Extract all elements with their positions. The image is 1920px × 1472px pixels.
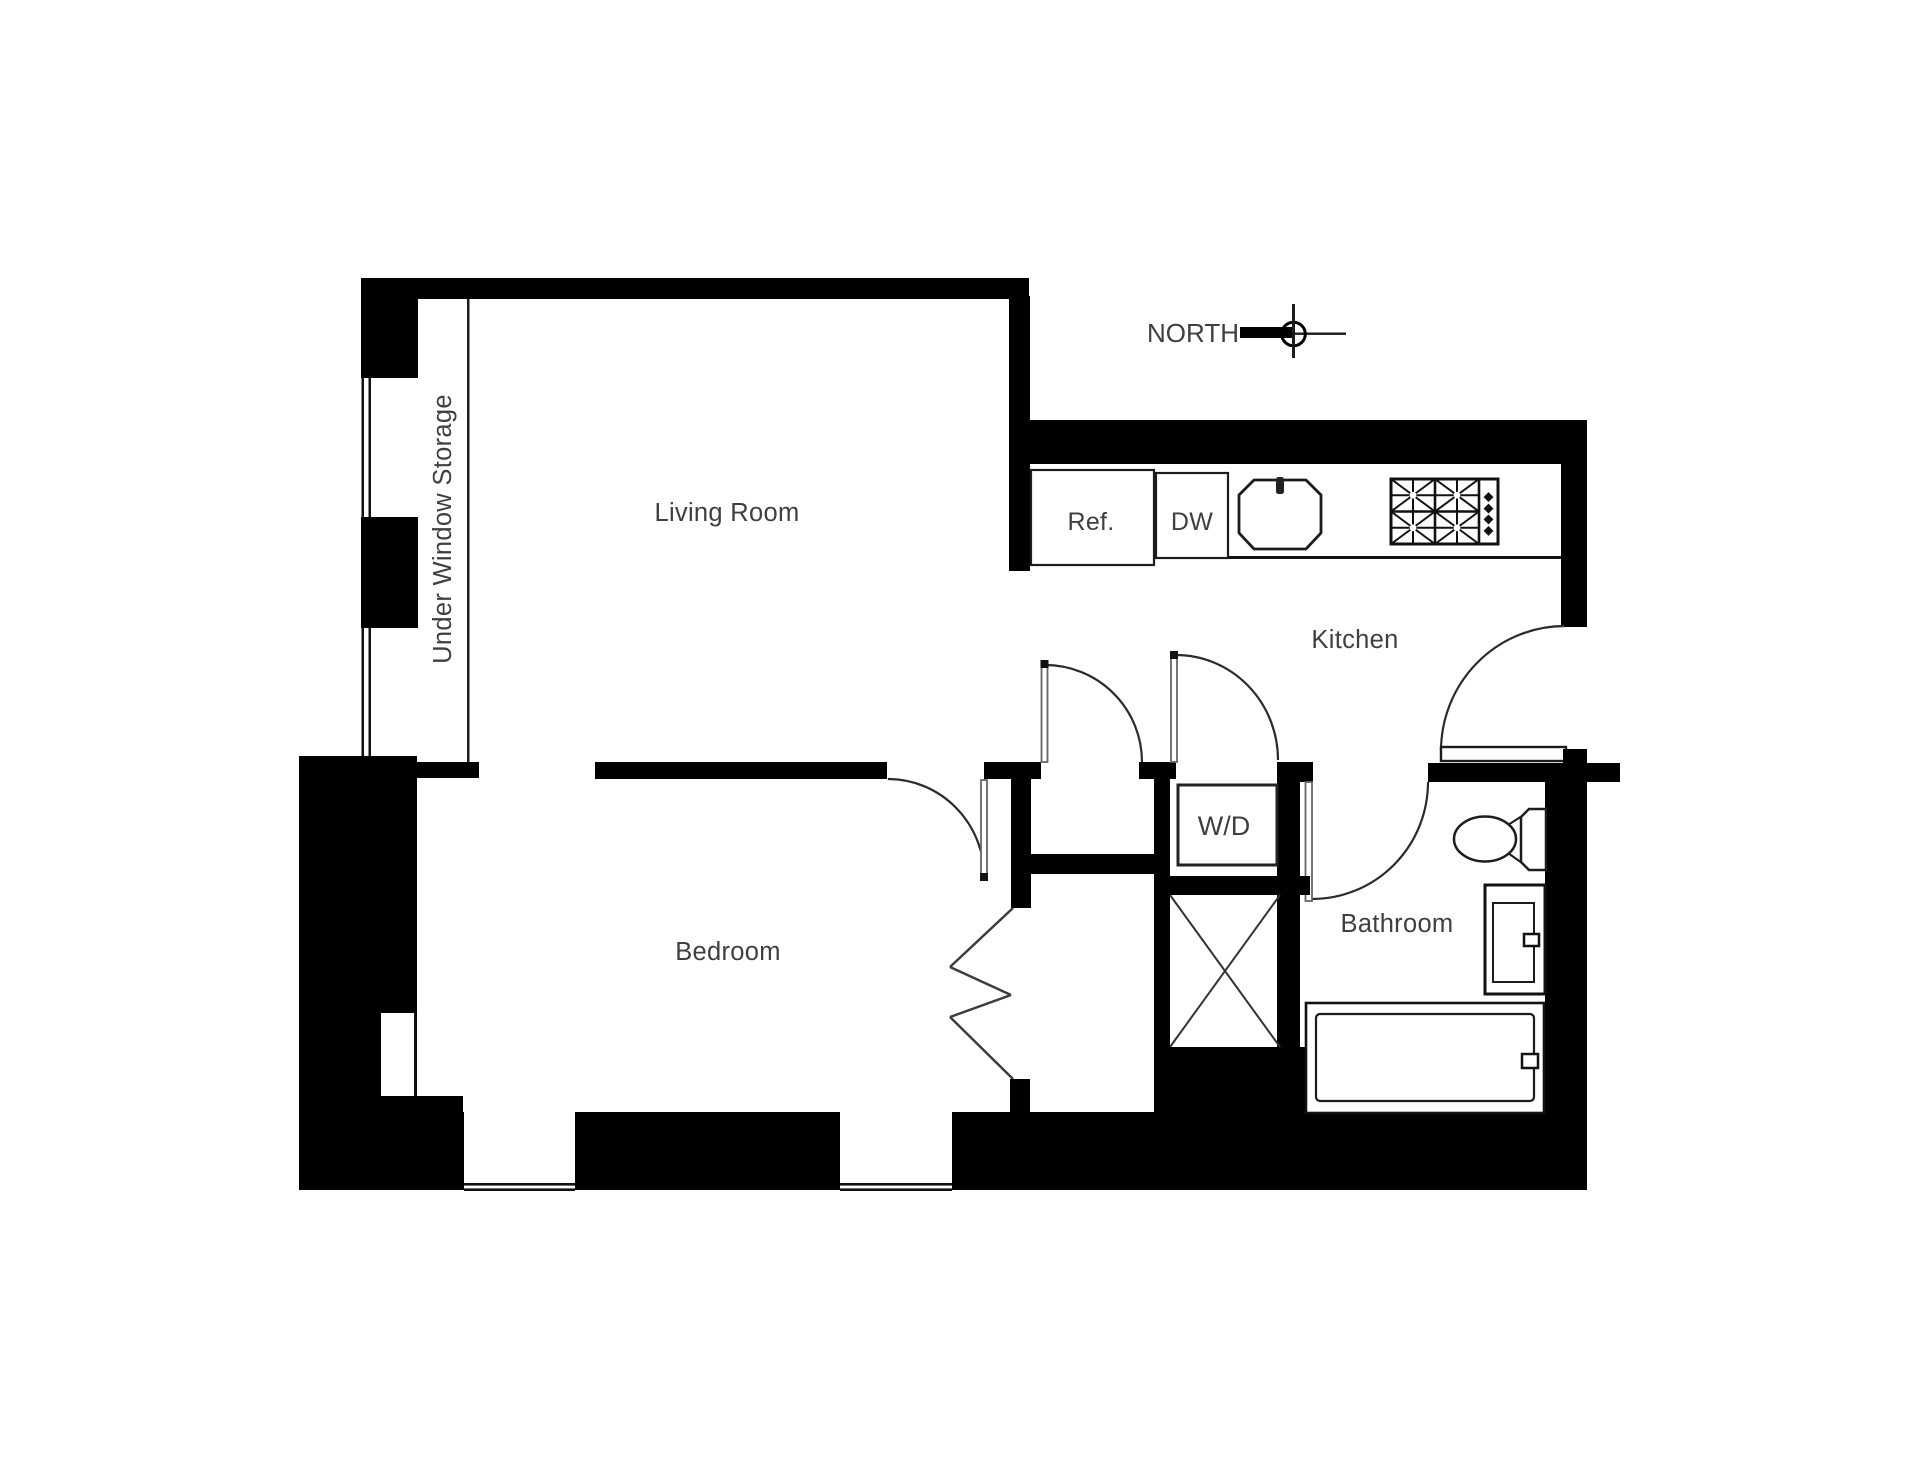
svg-text:Under Window Storage: Under Window Storage [429, 394, 457, 664]
svg-text:Kitchen: Kitchen [1311, 626, 1398, 654]
svg-text:Bathroom: Bathroom [1341, 910, 1454, 938]
svg-text:Bedroom: Bedroom [675, 938, 781, 966]
svg-text:W/D: W/D [1198, 811, 1250, 841]
svg-text:Living Room: Living Room [654, 499, 799, 527]
svg-text:NORTH: NORTH [1147, 318, 1239, 348]
svg-text:Ref.: Ref. [1067, 508, 1114, 536]
svg-text:DW: DW [1171, 508, 1213, 536]
